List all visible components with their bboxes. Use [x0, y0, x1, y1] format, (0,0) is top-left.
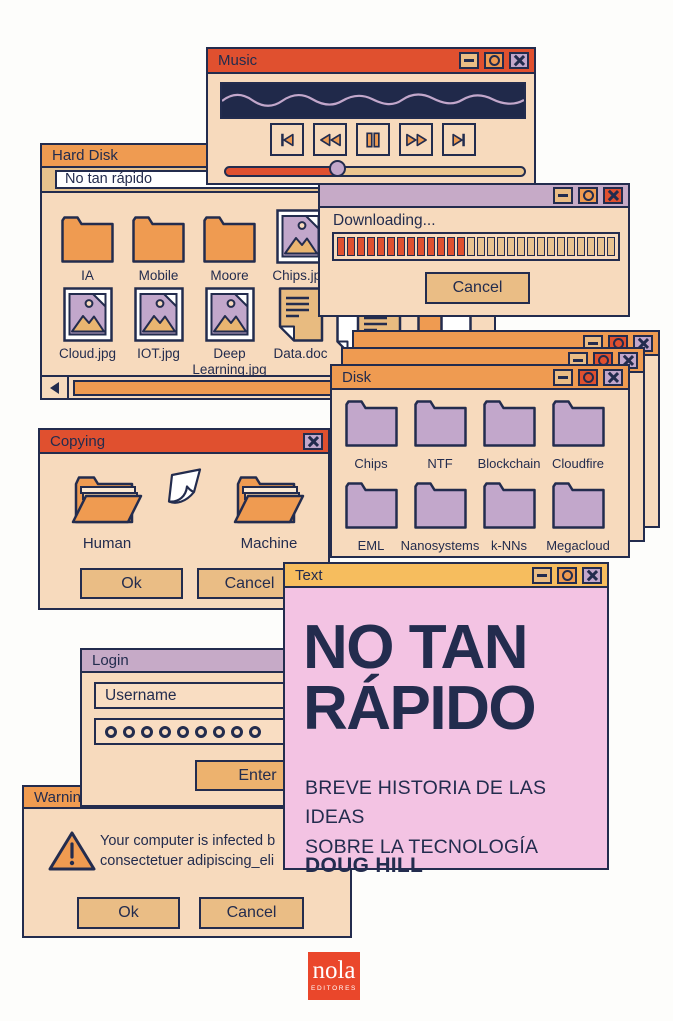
warning-line-1: Your computer is infected b — [100, 831, 275, 851]
close-button[interactable] — [303, 433, 323, 450]
disk-titlebar[interactable]: Disk — [332, 366, 628, 390]
copying-titlebar[interactable]: Copying — [40, 430, 328, 454]
book-title-line-1: NO TAN — [303, 618, 535, 679]
window-title: Disk — [342, 369, 371, 386]
fast-forward-button[interactable] — [399, 123, 433, 156]
window-title: Login — [92, 652, 129, 669]
transport-controls — [270, 123, 476, 156]
book-subtitle: BREVE HISTORIA DE LAS IDEAS SOBRE LA TEC… — [305, 774, 607, 862]
downloading-titlebar[interactable] — [320, 185, 628, 208]
folder-NTF[interactable]: NTF — [410, 398, 470, 471]
folder-label: Human — [83, 535, 131, 552]
folder-icon — [551, 480, 606, 535]
file-folder[interactable]: Moore — [194, 207, 265, 284]
progress-segment — [437, 237, 445, 256]
paper-icon — [158, 466, 210, 521]
folder-label: Cloudfire — [552, 456, 604, 471]
progress-segment — [387, 237, 395, 256]
warning-triangle-icon — [46, 829, 98, 878]
progress-segment — [457, 237, 465, 256]
folder-icon — [551, 398, 606, 453]
folder-icon — [344, 480, 399, 535]
folder-Megacloud[interactable]: Megacloud — [548, 480, 608, 553]
downloading-label: Downloading... — [333, 212, 436, 230]
copy-target-folder[interactable]: Machine — [224, 470, 314, 552]
progress-segment — [587, 237, 595, 256]
progress-segment — [577, 237, 585, 256]
open-folder-icon — [230, 470, 308, 533]
titlebar-buttons — [548, 187, 623, 204]
folder-Blockchain[interactable]: Blockchain — [479, 398, 539, 471]
image-icon — [134, 285, 184, 342]
window-text: Text NO TAN RÁPIDO BREVE HISTORIA DE LAS… — [283, 562, 609, 870]
progress-segment — [557, 237, 565, 256]
folder-label: Machine — [241, 535, 298, 552]
maximize-button[interactable] — [578, 187, 598, 204]
titlebar-buttons — [527, 567, 602, 584]
progress-segment — [407, 237, 415, 256]
minimize-button[interactable] — [459, 52, 479, 69]
folder-label: NTF — [427, 456, 452, 471]
progress-segment — [337, 237, 345, 256]
progress-segment — [597, 237, 605, 256]
progress-segment — [567, 237, 575, 256]
progress-segment — [507, 237, 515, 256]
window-disk: Disk ChipsNTFBlockchainCloudfireEMLNanos… — [330, 364, 630, 558]
folder-label: Chips — [354, 456, 387, 471]
file-image[interactable]: IOT.jpg — [123, 285, 194, 377]
publisher-name: nola — [312, 958, 355, 983]
password-dot — [231, 726, 243, 738]
waveform-icon — [222, 84, 524, 117]
window-music: Music — [206, 47, 536, 185]
folder-icon — [60, 207, 115, 264]
folder-Chips[interactable]: Chips — [341, 398, 401, 471]
progress-segment — [417, 237, 425, 256]
open-folder-icon — [68, 470, 146, 533]
password-dot — [249, 726, 261, 738]
image-icon — [63, 285, 113, 342]
password-dot — [105, 726, 117, 738]
window-title: Copying — [50, 433, 105, 450]
ok-button[interactable]: Ok — [80, 568, 183, 599]
warning-message: Your computer is infected b consectetuer… — [100, 831, 275, 871]
rewind-button[interactable] — [313, 123, 347, 156]
folder-label: k-NNs — [491, 538, 527, 553]
book-cover: Hard Disk No tan rápido IAMobileMooreChi… — [0, 0, 673, 1021]
close-button[interactable] — [509, 52, 529, 69]
titlebar-buttons — [454, 52, 529, 69]
progress-segment — [547, 237, 555, 256]
publisher-subtitle: EDITORES — [311, 985, 357, 992]
folder-Cloudfire[interactable]: Cloudfire — [548, 398, 608, 471]
folder-label: Megacloud — [546, 538, 610, 553]
file-folder[interactable]: IA — [52, 207, 123, 284]
file-folder[interactable]: Mobile — [123, 207, 194, 284]
password-dot — [159, 726, 171, 738]
folder-label: Nanosystems — [401, 538, 480, 553]
publisher-logo: nola EDITORES — [308, 952, 360, 1000]
text-titlebar[interactable]: Text — [285, 564, 607, 588]
folder-icon — [413, 480, 468, 535]
password-dot — [213, 726, 225, 738]
folder-Nanosystems[interactable]: Nanosystems — [410, 480, 470, 553]
file-image[interactable]: Cloud.jpg — [52, 285, 123, 377]
folder-k-NNs[interactable]: k-NNs — [479, 480, 539, 553]
folder-icon — [482, 398, 537, 453]
folder-label: EML — [358, 538, 385, 553]
password-dot — [177, 726, 189, 738]
folder-row: ChipsNTFBlockchainCloudfire — [341, 398, 608, 471]
book-subtitle-line-1: BREVE HISTORIA DE LAS IDEAS — [305, 774, 607, 833]
progress-segment — [367, 237, 375, 256]
progress-segment — [467, 237, 475, 256]
file-label: Data.doc — [258, 346, 344, 362]
folder-label: Blockchain — [478, 456, 541, 471]
folder-icon — [482, 480, 537, 535]
file-image[interactable]: Deep Learning.jpg — [194, 285, 265, 377]
progress-segment — [487, 237, 495, 256]
progress-segment — [397, 237, 405, 256]
password-dots — [105, 726, 261, 738]
pause-button[interactable] — [356, 123, 390, 156]
ok-button[interactable]: Ok — [77, 897, 180, 929]
progress-bar — [332, 232, 620, 261]
progress-segment — [477, 237, 485, 256]
window-title: Hard Disk — [52, 147, 118, 164]
waveform-display — [220, 82, 526, 119]
skip-start-button[interactable] — [270, 123, 304, 156]
progress-segment — [527, 237, 535, 256]
progress-segment — [607, 237, 615, 256]
folder-row: EMLNanosystemsk-NNsMegacloud — [341, 480, 608, 553]
window-title: Music — [218, 52, 257, 69]
book-title-line-2: RÁPIDO — [303, 679, 535, 740]
progress-segment — [517, 237, 525, 256]
folder-icon — [202, 207, 257, 264]
cancel-button[interactable]: Cancel — [199, 897, 304, 929]
password-dot — [195, 726, 207, 738]
progress-segment — [347, 237, 355, 256]
window-title: Text — [295, 567, 323, 584]
close-button[interactable] — [603, 187, 623, 204]
progress-segment — [497, 237, 505, 256]
titlebar-buttons — [548, 369, 623, 386]
cover-body: NO TAN RÁPIDO BREVE HISTORIA DE LAS IDEA… — [285, 588, 607, 892]
book-title: NO TAN RÁPIDO — [303, 618, 535, 740]
folder-icon — [413, 398, 468, 453]
minimize-button[interactable] — [553, 369, 573, 386]
close-button[interactable] — [603, 369, 623, 386]
close-button[interactable] — [582, 567, 602, 584]
progress-segment — [537, 237, 545, 256]
file-row: Cloud.jpgIOT.jpgDeep Learning.jpgData.do… — [52, 285, 336, 377]
password-dot — [123, 726, 135, 738]
folder-EML[interactable]: EML — [341, 480, 401, 553]
file-row: IAMobileMooreChips.jpg — [52, 207, 336, 284]
image-icon — [205, 285, 255, 342]
maximize-button[interactable] — [557, 567, 577, 584]
minimize-button[interactable] — [553, 187, 573, 204]
password-dot — [141, 726, 153, 738]
book-author: DOUG HILL — [305, 854, 423, 878]
window-downloading: Downloading... Cancel — [318, 183, 630, 317]
maximize-button[interactable] — [578, 369, 598, 386]
progress-segment — [377, 237, 385, 256]
maximize-button[interactable] — [484, 52, 504, 69]
playback-slider-knob[interactable] — [329, 160, 346, 177]
progress-segment — [447, 237, 455, 256]
progress-segment — [357, 237, 365, 256]
copy-source-folder[interactable]: Human — [62, 470, 152, 552]
folder-icon — [344, 398, 399, 453]
cancel-button[interactable]: Cancel — [425, 272, 530, 304]
progress-segment — [427, 237, 435, 256]
playback-slider[interactable] — [224, 166, 526, 177]
skip-end-button[interactable] — [442, 123, 476, 156]
music-titlebar[interactable]: Music — [208, 49, 534, 74]
folder-icon — [131, 207, 186, 264]
titlebar-buttons — [298, 433, 323, 450]
minimize-button[interactable] — [532, 567, 552, 584]
left-arrow-icon — [50, 382, 59, 394]
scroll-left-button[interactable] — [42, 377, 69, 398]
warning-line-2: consectetuer adipiscing_eli — [100, 851, 275, 871]
doc-icon — [278, 285, 324, 342]
